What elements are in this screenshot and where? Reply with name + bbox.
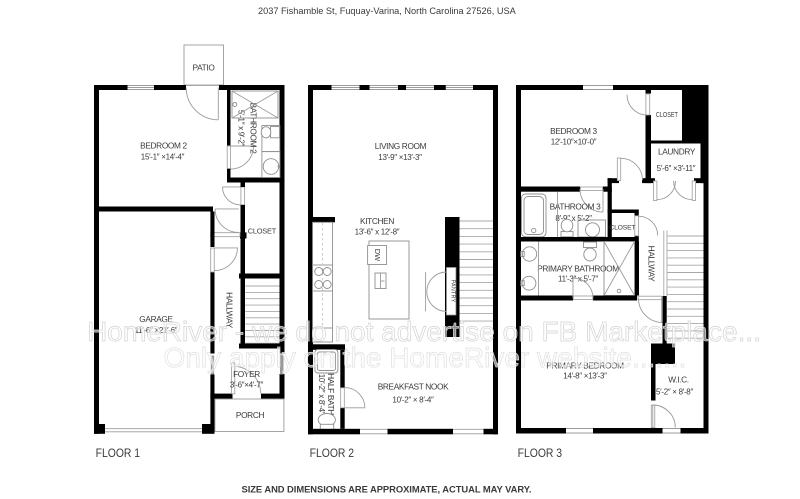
svg-text:FLOOR 2: FLOOR 2 bbox=[310, 446, 355, 460]
svg-text:CLOSET: CLOSET bbox=[248, 227, 277, 236]
svg-text:HALF BATH: HALF BATH bbox=[326, 373, 336, 415]
svg-text:LIVING ROOM: LIVING ROOM bbox=[375, 141, 427, 151]
svg-text:PATIO: PATIO bbox=[193, 63, 216, 73]
svg-text:PORCH: PORCH bbox=[236, 410, 265, 420]
svg-text:BEDROOM 2: BEDROOM 2 bbox=[140, 141, 187, 151]
svg-text:5′-2″ × 8′-8″: 5′-2″ × 8′-8″ bbox=[656, 388, 693, 397]
svg-text:13′-6″ x 12′-8″: 13′-6″ x 12′-8″ bbox=[355, 228, 400, 237]
svg-text:LAUNDRY: LAUNDRY bbox=[658, 147, 696, 157]
svg-text:SIZE AND DIMENSIONS ARE APPROX: SIZE AND DIMENSIONS ARE APPROXIMATE, ACT… bbox=[242, 484, 532, 495]
svg-text:5′-6″ ×3′-11″: 5′-6″ ×3′-11″ bbox=[657, 164, 696, 173]
svg-text:FLOOR 3: FLOOR 3 bbox=[518, 446, 563, 460]
svg-text:FLOOR 1: FLOOR 1 bbox=[96, 446, 141, 460]
svg-text:DW: DW bbox=[373, 249, 382, 262]
svg-text:W.I.C.: W.I.C. bbox=[668, 375, 689, 385]
svg-text:8′-9″ x 5′-2″: 8′-9″ x 5′-2″ bbox=[555, 214, 592, 223]
svg-text:13′-9″ ×13′-3″: 13′-9″ ×13′-3″ bbox=[378, 153, 422, 162]
svg-text:BREAKFAST NOOK: BREAKFAST NOOK bbox=[378, 382, 449, 392]
svg-text:15′-1″ ×14′-4″: 15′-1″ ×14′-4″ bbox=[141, 153, 185, 162]
svg-text:PANTRY: PANTRY bbox=[450, 279, 456, 302]
svg-text:BATHROOM 2: BATHROOM 2 bbox=[249, 103, 259, 154]
svg-text:3′-6″×4′-7″: 3′-6″×4′-7″ bbox=[230, 381, 264, 390]
svg-text:HALLWAY: HALLWAY bbox=[647, 246, 657, 282]
svg-text:10′-2″ × 8′-4″: 10′-2″ × 8′-4″ bbox=[392, 396, 434, 405]
svg-text:Only apply on the HomeRiver we: Only apply on the HomeRiver website.....… bbox=[164, 342, 687, 373]
svg-text:12′-10″×10′-0″: 12′-10″×10′-0″ bbox=[551, 138, 597, 147]
svg-text:BEDROOM 3: BEDROOM 3 bbox=[550, 126, 597, 136]
svg-text:PRIMARY BATHROOM: PRIMARY BATHROOM bbox=[537, 264, 619, 274]
svg-text:10′-2″ x 8′-4″: 10′-2″ x 8′-4″ bbox=[317, 374, 326, 415]
svg-text:KITCHEN: KITCHEN bbox=[360, 216, 394, 226]
svg-text:CLOSET: CLOSET bbox=[609, 225, 635, 232]
svg-text:2037 Fishamble St, Fuquay-Vari: 2037 Fishamble St, Fuquay-Varina, North … bbox=[258, 6, 517, 16]
svg-text:CLOSET: CLOSET bbox=[656, 110, 678, 119]
svg-text:5′-1″ x 9′-2″: 5′-1″ x 9′-2″ bbox=[237, 110, 246, 147]
